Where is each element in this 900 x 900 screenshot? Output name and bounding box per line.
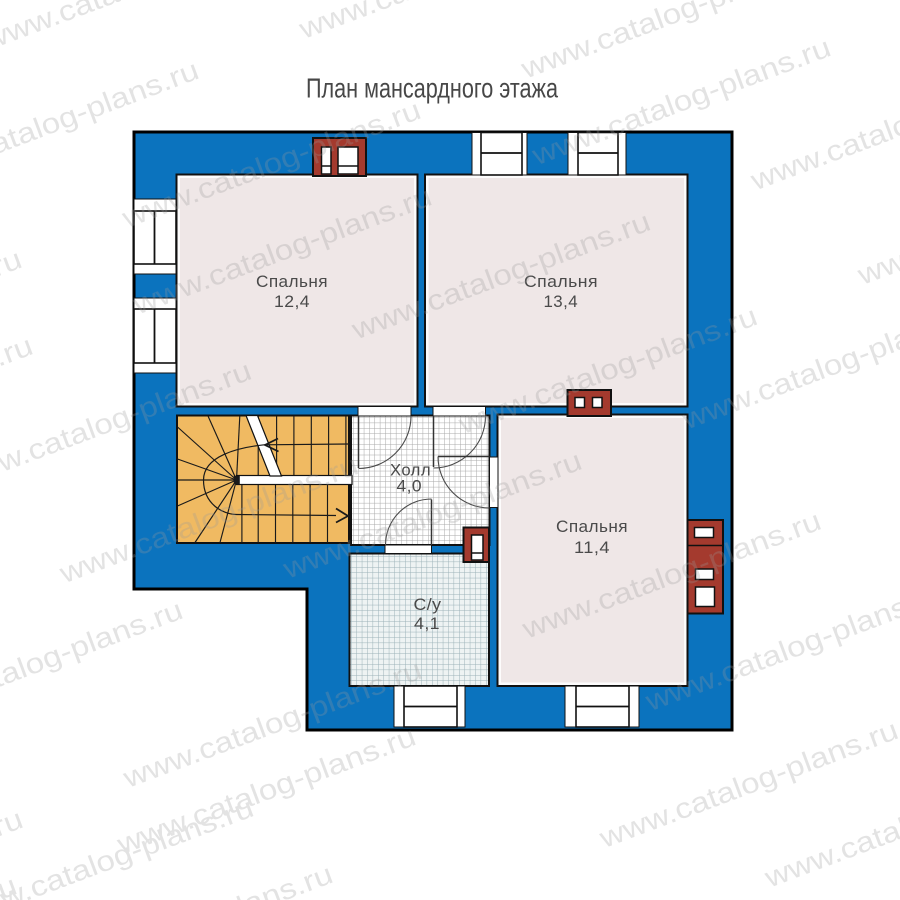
svg-text:12,4: 12,4 (274, 293, 310, 311)
svg-text:www.catalog-plans.ru: www.catalog-plans.ru (853, 151, 900, 292)
svg-text:www.catalog-plans.ru: www.catalog-plans.ru (294, 0, 602, 46)
svg-text:11,4: 11,4 (574, 539, 610, 557)
svg-text:Спальня: Спальня (556, 518, 628, 536)
svg-text:13,4: 13,4 (544, 293, 579, 311)
svg-text:www.catalog-plans.ru: www.catalog-plans.ru (0, 0, 286, 58)
svg-text:План мансардного этажа: План мансардного этажа (306, 73, 559, 104)
svg-text:4,1: 4,1 (414, 615, 440, 633)
svg-text:С/у: С/у (414, 596, 442, 614)
svg-text:Спальня: Спальня (256, 273, 328, 291)
svg-text:www.catalog-plans.ru: www.catalog-plans.ru (0, 792, 258, 900)
svg-text:4,0: 4,0 (397, 478, 423, 496)
svg-text:www.catalog-plans.ru: www.catalog-plans.ru (0, 594, 187, 735)
